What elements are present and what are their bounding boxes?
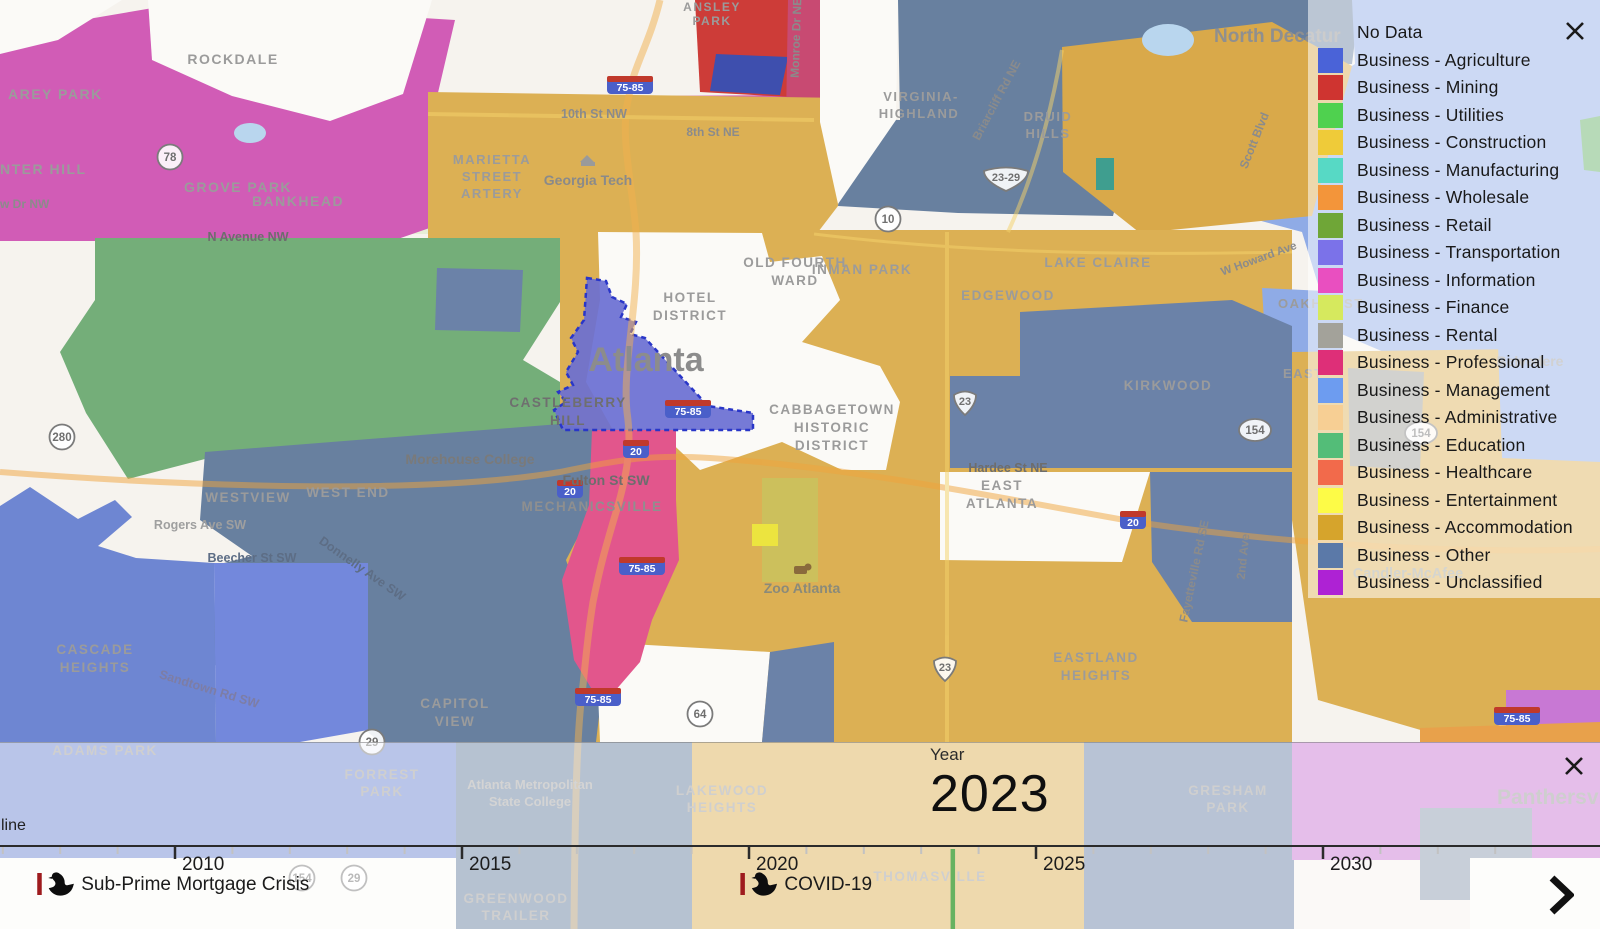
legend-item-label: Business - Professional (1357, 352, 1544, 373)
svg-text:EASTLAND: EASTLAND (1053, 650, 1139, 665)
legend-item-label: Business - Construction (1357, 132, 1546, 153)
legend-swatch (1318, 103, 1343, 128)
svg-text:75-85: 75-85 (585, 694, 612, 706)
legend-close-icon[interactable] (1565, 21, 1585, 41)
timeline-event: Sub-Prime Mortgage Crisis (37, 872, 309, 895)
event-marker-bar (740, 873, 745, 895)
svg-text:10: 10 (882, 214, 895, 226)
svg-text:75-85: 75-85 (617, 82, 644, 94)
svg-text:78: 78 (164, 152, 177, 164)
legend-item-label: Business - Other (1357, 545, 1491, 566)
legend-swatch (1318, 570, 1343, 595)
legend-item-label: Business - Agriculture (1357, 50, 1531, 71)
svg-text:HEIGHTS: HEIGHTS (1061, 668, 1132, 683)
legend-item[interactable]: Business - Manufacturing (1308, 157, 1600, 185)
legend-item-label: Business - Mining (1357, 77, 1499, 98)
svg-text:ROCKDALE: ROCKDALE (187, 51, 278, 67)
svg-text:WESTVIEW: WESTVIEW (205, 490, 291, 505)
legend-item[interactable]: Business - Management (1308, 377, 1600, 405)
svg-text:WEST END: WEST END (306, 485, 389, 500)
tick-year-label: 2010 (182, 854, 224, 875)
legend-item[interactable]: Business - Other (1308, 542, 1600, 570)
svg-text:75-85: 75-85 (1504, 713, 1531, 725)
tick-year-label: 2025 (1043, 854, 1085, 875)
svg-text:DISTRICT: DISTRICT (795, 438, 869, 453)
legend-swatch (1318, 323, 1343, 348)
svg-text:75-85: 75-85 (675, 406, 702, 418)
svg-text:HISTORIC: HISTORIC (794, 420, 870, 435)
svg-text:MARIETTA: MARIETTA (453, 152, 531, 167)
legend-item[interactable]: Business - Entertainment (1308, 487, 1600, 515)
legend-item[interactable]: Business - Utilities (1308, 102, 1600, 130)
legend-swatch (1318, 460, 1343, 485)
timeline-partial-label: line (1, 817, 26, 835)
svg-text:Rogers Ave SW: Rogers Ave SW (154, 518, 246, 532)
tick-year-label: 2030 (1330, 854, 1372, 875)
svg-text:BANKHEAD: BANKHEAD (252, 193, 344, 209)
timeline-panel[interactable]: 20102015202020252030Sub-Prime Mortgage C… (0, 742, 1600, 929)
legend-item[interactable]: Business - Education (1308, 432, 1600, 460)
svg-text:LAKE CLAIRE: LAKE CLAIRE (1044, 255, 1151, 270)
svg-text:Atlanta: Atlanta (588, 341, 704, 379)
svg-text:ATLANTA: ATLANTA (966, 496, 1038, 511)
legend-item[interactable]: Business - Healthcare (1308, 459, 1600, 487)
legend-item[interactable]: Business - Retail (1308, 212, 1600, 240)
legend-item[interactable]: Business - Administrative (1308, 404, 1600, 432)
legend-item-label: Business - Administrative (1357, 407, 1558, 428)
svg-text:Zoo Atlanta: Zoo Atlanta (764, 580, 841, 596)
legend-swatch (1318, 130, 1343, 155)
legend-swatch (1318, 48, 1343, 73)
svg-text:20: 20 (630, 446, 642, 458)
svg-text:w Dr NW: w Dr NW (0, 197, 50, 211)
legend-item[interactable]: Business - Professional (1308, 349, 1600, 377)
legend-swatch (1318, 75, 1343, 100)
svg-text:STREET: STREET (462, 169, 522, 184)
legend-item-label: Business - Finance (1357, 297, 1509, 318)
svg-text:Hardee St NE: Hardee St NE (968, 461, 1047, 475)
svg-text:10th St NW: 10th St NW (561, 107, 627, 121)
svg-text:ANSLEY: ANSLEY (683, 0, 741, 14)
tick-year-label: 2015 (469, 854, 511, 875)
year-label: Year (930, 745, 1050, 765)
legend-item[interactable]: Business - Mining (1308, 74, 1600, 102)
legend-item-label: Business - Information (1357, 270, 1536, 291)
app-window: 7828010642915429154154232323-2975-8575-8… (0, 0, 1600, 929)
svg-text:CAPITOL: CAPITOL (420, 696, 490, 711)
legend-swatch (1318, 158, 1343, 183)
legend-item-label: Business - Transportation (1357, 242, 1560, 263)
legend-item[interactable]: Business - Rental (1308, 322, 1600, 350)
svg-text:HEIGHTS: HEIGHTS (60, 660, 131, 675)
svg-text:EAST: EAST (981, 478, 1023, 493)
svg-text:HILLS: HILLS (1025, 126, 1070, 141)
timeline-close-icon[interactable] (1564, 756, 1584, 776)
svg-text:280: 280 (52, 432, 71, 444)
svg-text:NTER HILL: NTER HILL (0, 161, 87, 177)
legend-item[interactable]: Business - Unclassified (1308, 569, 1600, 597)
legend-item-label: Business - Retail (1357, 215, 1492, 236)
svg-text:23: 23 (939, 662, 951, 674)
svg-text:N Avenue NW: N Avenue NW (207, 230, 288, 244)
legend-item-label: Business - Manufacturing (1357, 160, 1559, 181)
legend-swatch (1318, 543, 1343, 568)
svg-text:Georgia Tech: Georgia Tech (544, 172, 632, 188)
svg-text:HOTEL: HOTEL (663, 290, 716, 305)
legend-item-label: Business - Entertainment (1357, 490, 1557, 511)
svg-text:20: 20 (1127, 517, 1139, 529)
legend-item[interactable]: Business - Information (1308, 267, 1600, 295)
legend-item[interactable]: No Data (1308, 19, 1600, 47)
svg-text:8th St NE: 8th St NE (686, 125, 739, 139)
current-year-value: 2023 (930, 768, 1050, 820)
legend-swatch (1318, 405, 1343, 430)
svg-text:VIRGINIA-: VIRGINIA- (883, 89, 959, 104)
svg-text:154: 154 (1245, 425, 1265, 437)
timeline-axis[interactable]: 20102015202020252030Sub-Prime Mortgage C… (0, 743, 1600, 929)
legend-item[interactable]: Business - Transportation (1308, 239, 1600, 267)
svg-text:ARTERY: ARTERY (461, 186, 523, 201)
legend-swatch (1318, 488, 1343, 513)
legend-item[interactable]: Business - Wholesale (1308, 184, 1600, 212)
legend-swatch (1318, 185, 1343, 210)
legend-item-label: Business - Healthcare (1357, 462, 1532, 483)
year-display: Year 2023 (930, 745, 1050, 820)
legend-item-label: Business - Management (1357, 380, 1550, 401)
legend-swatch (1318, 268, 1343, 293)
legend-item-label: Business - Education (1357, 435, 1525, 456)
svg-text:KIRKWOOD: KIRKWOOD (1124, 378, 1213, 393)
svg-text:64: 64 (694, 709, 707, 721)
legend-item[interactable]: Business - Accommodation (1308, 514, 1600, 542)
svg-text:EDGEWOOD: EDGEWOOD (961, 288, 1055, 303)
svg-text:VIEW: VIEW (435, 714, 476, 729)
legend-item-label: No Data (1357, 22, 1423, 43)
svg-text:23: 23 (959, 396, 971, 408)
svg-text:MECHANICSVILLE: MECHANICSVILLE (521, 499, 662, 514)
svg-text:23-29: 23-29 (992, 172, 1020, 184)
legend-item[interactable]: Business - Construction (1308, 129, 1600, 157)
event-marker-bar (37, 873, 42, 895)
legend-swatch (1318, 295, 1343, 320)
legend-item-label: Business - Rental (1357, 325, 1498, 346)
svg-text:INMAN PARK: INMAN PARK (812, 262, 912, 277)
svg-text:Morehouse College: Morehouse College (405, 451, 534, 467)
legend-item[interactable]: Business - Agriculture (1308, 47, 1600, 75)
svg-text:DRUID: DRUID (1024, 109, 1073, 124)
svg-text:CASTLEBERRY: CASTLEBERRY (509, 395, 626, 410)
legend-swatch (1318, 350, 1343, 375)
legend-swatch (1318, 378, 1343, 403)
legend-item-label: Business - Accommodation (1357, 517, 1573, 538)
legend-panel: No DataBusiness - AgricultureBusiness - … (1308, 0, 1600, 598)
svg-text:AREY PARK: AREY PARK (8, 86, 103, 102)
svg-text:CABBAGETOWN: CABBAGETOWN (769, 402, 895, 417)
current-year-marker[interactable] (951, 849, 956, 929)
legend-swatch (1318, 213, 1343, 238)
black-swan-icon (48, 872, 74, 895)
svg-text:75-85: 75-85 (629, 563, 656, 575)
legend-item-label: Business - Wholesale (1357, 187, 1529, 208)
tick-year-label: 2020 (756, 854, 798, 875)
black-swan-icon (751, 872, 777, 895)
svg-text:PARK: PARK (692, 14, 731, 28)
legend-rows: No DataBusiness - AgricultureBusiness - … (1308, 19, 1600, 597)
legend-swatch-empty (1318, 20, 1343, 45)
legend-swatch (1318, 433, 1343, 458)
legend-item-label: Business - Utilities (1357, 105, 1504, 126)
svg-text:Fulton St SW: Fulton St SW (562, 472, 650, 488)
event-label: Sub-Prime Mortgage Crisis (81, 874, 309, 895)
svg-text:CASCADE: CASCADE (56, 642, 133, 657)
timeline-next-chevron-icon[interactable] (1548, 875, 1574, 915)
legend-item-label: Business - Unclassified (1357, 572, 1543, 593)
timeline-event: COVID-19 (740, 872, 872, 895)
svg-text:DISTRICT: DISTRICT (653, 308, 727, 323)
event-label: COVID-19 (784, 874, 872, 895)
legend-swatch (1318, 240, 1343, 265)
svg-text:HILL: HILL (550, 413, 586, 428)
svg-text:Beecher St SW: Beecher St SW (208, 551, 297, 565)
svg-text:HIGHLAND: HIGHLAND (879, 106, 960, 121)
legend-swatch (1318, 515, 1343, 540)
svg-text:Monroe Dr NE: Monroe Dr NE (788, 0, 805, 78)
legend-item[interactable]: Business - Finance (1308, 294, 1600, 322)
